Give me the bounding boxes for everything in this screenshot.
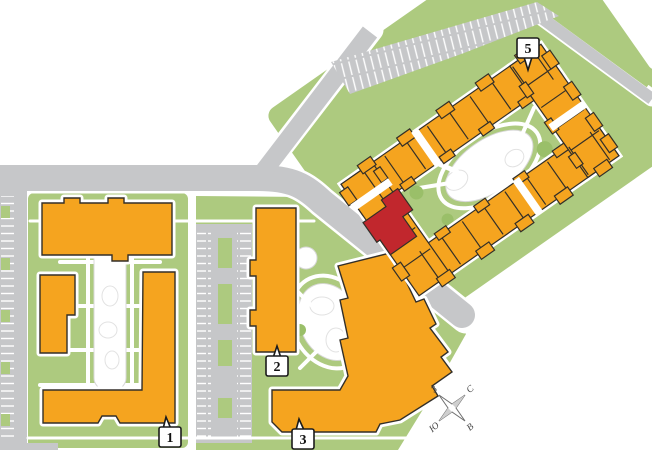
label-5-text: 5 [525,42,532,57]
label-1-text: 1 [167,431,174,446]
compass-east: В [465,422,476,434]
compass-rose: С В Ю З [427,383,477,435]
label-2-text: 2 [274,360,281,375]
building-2[interactable] [250,208,296,352]
compass-south: Ю [427,421,442,436]
site-plan-map: 1 2 3 5 С В Ю З [0,0,652,450]
compass-north: С [465,383,477,395]
building-1-north[interactable] [42,198,172,261]
site-plan: 1 2 3 5 С В Ю З [0,0,652,450]
label-3-text: 3 [300,433,307,448]
road-stub-sw [0,443,58,450]
